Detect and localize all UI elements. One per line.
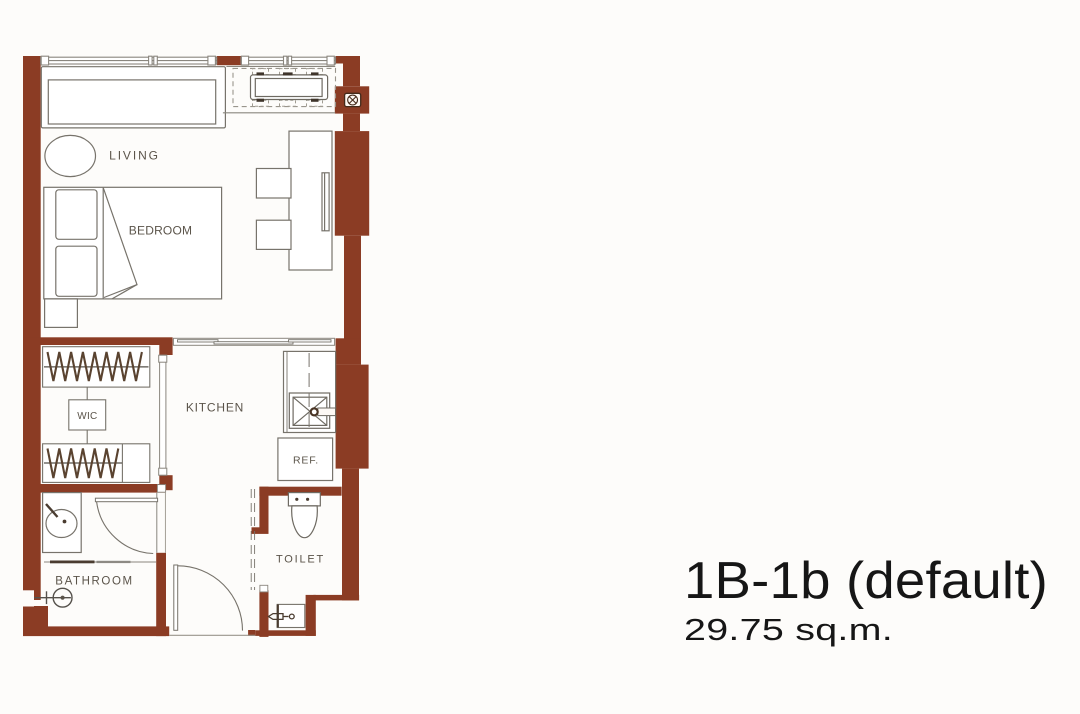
svg-text:REF.: REF. [293,455,319,467]
svg-text:LIVING: LIVING [109,149,160,163]
svg-text:TOILET: TOILET [276,554,325,566]
svg-text:KITCHEN: KITCHEN [186,401,244,415]
svg-text:BATHROOM: BATHROOM [55,576,133,588]
svg-text:29.75 sq.m.: 29.75 sq.m. [684,612,893,647]
svg-text:WIC: WIC [77,411,97,422]
svg-text:1B-1b (default): 1B-1b (default) [684,552,1048,610]
svg-text:BEDROOM: BEDROOM [129,224,192,238]
